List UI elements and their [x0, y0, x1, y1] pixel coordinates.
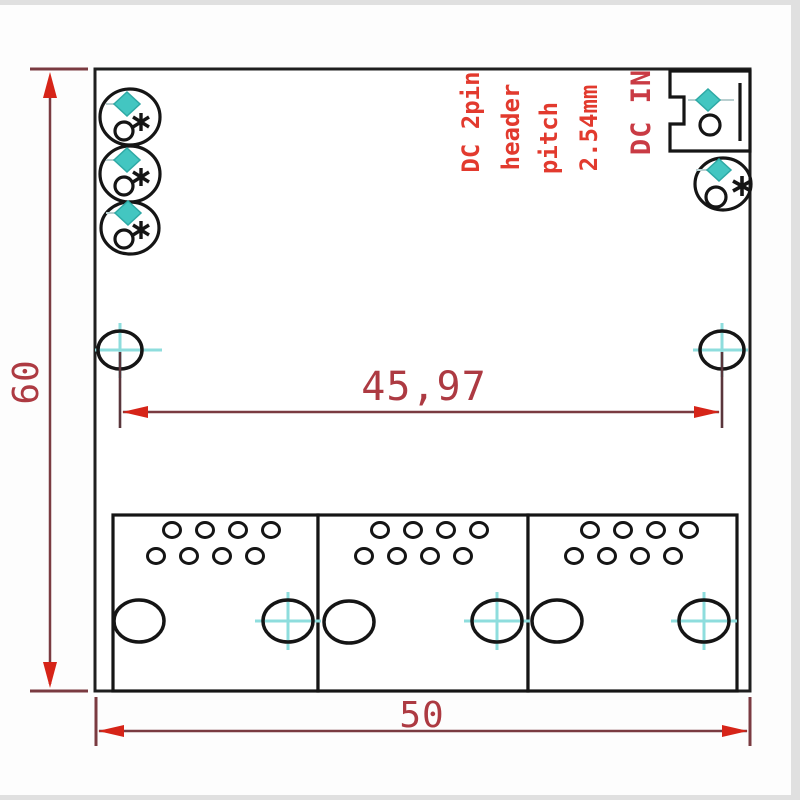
- round-pad-icon: [115, 230, 133, 248]
- dim-width-label: 50: [399, 695, 444, 736]
- photo-edge-bottom: [0, 795, 800, 800]
- photo-edge-top: [0, 0, 800, 5]
- rj45-connector-row: [113, 515, 737, 691]
- header-note-line-4: 2.54mm: [575, 85, 603, 172]
- arrow-down-icon: [43, 662, 57, 688]
- dim-hole-spacing-label: 45,97: [361, 364, 486, 410]
- rj45-connector-3: [528, 515, 737, 691]
- round-pad-icon: [700, 115, 720, 135]
- header-note-line-3: pitch: [535, 102, 563, 174]
- round-pad-icon: [706, 187, 726, 207]
- dim-height-label: 60: [6, 359, 47, 404]
- round-pad-icon: [115, 122, 133, 140]
- dc-in-label: DC IN: [626, 69, 657, 155]
- header-note-line-2: header: [497, 84, 525, 171]
- round-pad-icon: [115, 177, 133, 195]
- arrow-up-icon: [43, 72, 57, 98]
- pcb-dimension-drawing: 60 45,97 50 DC 2pin header pitch 2.54m: [0, 0, 800, 800]
- arrow-left-icon: [98, 725, 124, 737]
- dim-board-height: 60: [6, 69, 88, 691]
- header-note-line-1: DC 2pin: [457, 71, 485, 172]
- drawing-canvas: 60 45,97 50 DC 2pin header pitch 2.54m: [0, 0, 800, 800]
- photo-edge-right: [791, 0, 800, 800]
- arrow-right-icon: [722, 725, 748, 737]
- dim-board-width: 50: [96, 695, 750, 746]
